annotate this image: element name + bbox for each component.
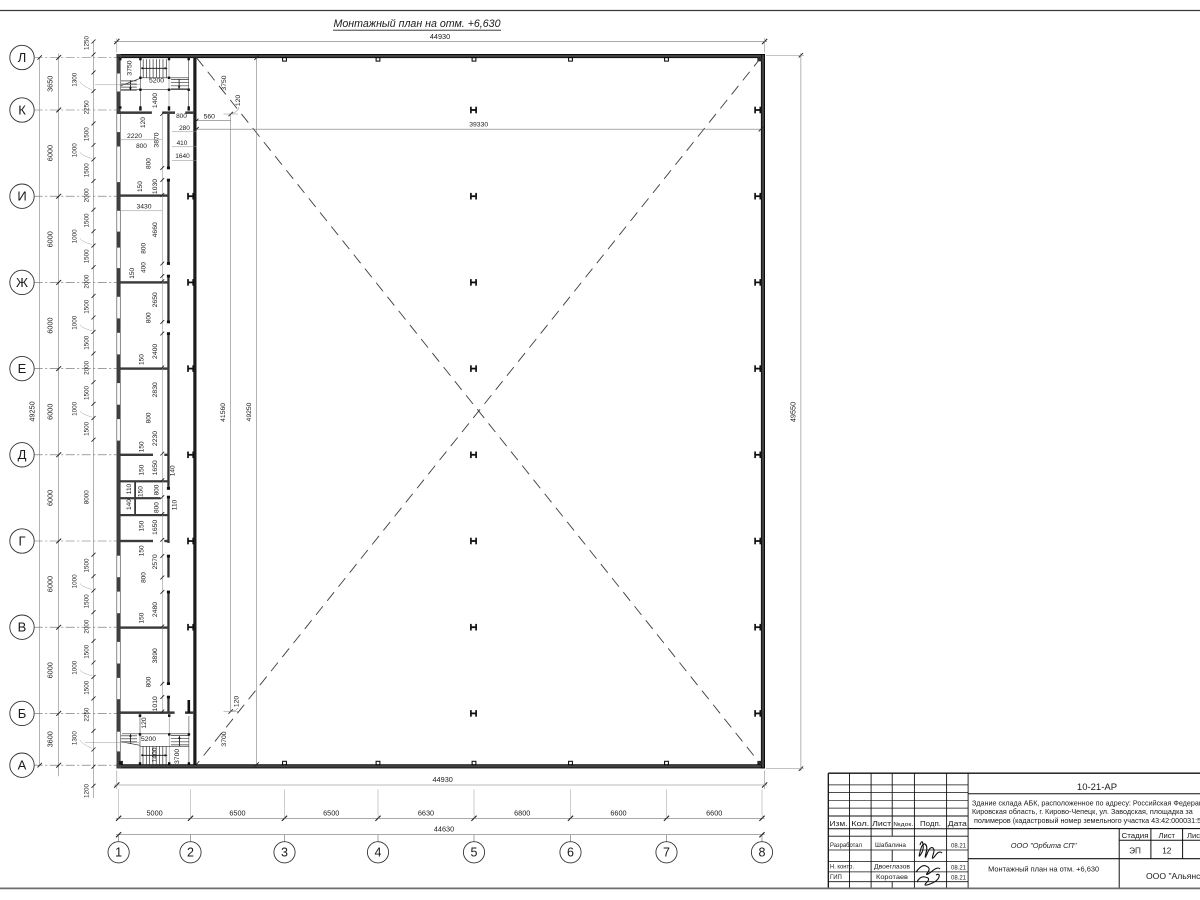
- svg-text:Листов: Листов: [1187, 831, 1200, 840]
- svg-text:12: 12: [1162, 847, 1172, 856]
- svg-text:140: 140: [126, 499, 133, 510]
- svg-text:2570: 2570: [152, 554, 159, 569]
- svg-text:Г: Г: [18, 533, 25, 548]
- svg-text:5000: 5000: [146, 808, 162, 817]
- svg-text:6000: 6000: [46, 576, 55, 592]
- svg-text:6500: 6500: [229, 808, 245, 817]
- svg-text:800: 800: [146, 312, 153, 323]
- svg-text:2400: 2400: [152, 344, 159, 359]
- svg-text:800: 800: [154, 484, 161, 495]
- svg-text:110: 110: [126, 483, 133, 494]
- svg-text:3890: 3890: [152, 648, 159, 663]
- svg-text:6000: 6000: [46, 145, 55, 161]
- svg-text:К: К: [18, 102, 26, 117]
- svg-text:3750: 3750: [221, 75, 228, 90]
- svg-text:полимеров (кадастровый номер з: полимеров (кадастровый номер земельного …: [974, 816, 1200, 825]
- svg-text:1300: 1300: [71, 72, 78, 87]
- svg-text:Ж: Ж: [16, 275, 28, 290]
- svg-text:Подп.: Подп.: [920, 819, 941, 828]
- svg-text:ООО "Орбита СП": ООО "Орбита СП": [1011, 841, 1077, 850]
- svg-text:3700: 3700: [174, 749, 181, 764]
- svg-text:150: 150: [139, 612, 146, 623]
- svg-text:120: 120: [140, 117, 147, 128]
- svg-text:7: 7: [663, 846, 670, 860]
- svg-text:1000: 1000: [71, 401, 78, 416]
- svg-text:Здание склада АБК, расположенн: Здание склада АБК, расположенное по адре…: [972, 798, 1200, 807]
- svg-text:800: 800: [146, 412, 153, 423]
- svg-text:1650: 1650: [152, 520, 159, 535]
- svg-text:44930: 44930: [433, 775, 453, 784]
- svg-text:150: 150: [139, 354, 146, 365]
- svg-text:8000: 8000: [84, 490, 91, 505]
- svg-text:44630: 44630: [434, 825, 454, 834]
- svg-text:1500: 1500: [84, 249, 91, 264]
- svg-text:2000: 2000: [84, 360, 91, 375]
- svg-text:1000: 1000: [71, 660, 78, 675]
- svg-text:6600: 6600: [610, 808, 626, 817]
- svg-text:1500: 1500: [84, 335, 91, 350]
- svg-text:№док.: №док.: [893, 822, 913, 828]
- svg-text:410: 410: [177, 140, 188, 147]
- svg-text:49250: 49250: [28, 401, 37, 421]
- svg-text:41560: 41560: [220, 403, 227, 422]
- svg-text:Д: Д: [18, 447, 27, 462]
- svg-text:Шабалина: Шабалина: [875, 841, 906, 849]
- svg-text:Б: Б: [18, 706, 27, 721]
- svg-text:1500: 1500: [84, 163, 91, 178]
- svg-text:800: 800: [136, 143, 147, 150]
- svg-text:120: 120: [141, 717, 148, 729]
- svg-text:Кол.: Кол.: [851, 819, 869, 828]
- svg-text:800: 800: [140, 242, 147, 253]
- svg-text:1030: 1030: [152, 179, 159, 194]
- svg-text:150: 150: [139, 464, 146, 475]
- svg-text:120: 120: [235, 95, 242, 107]
- svg-text:2230: 2230: [152, 431, 159, 446]
- svg-text:2220: 2220: [127, 133, 142, 140]
- svg-text:560: 560: [204, 113, 216, 120]
- svg-text:А: А: [18, 758, 27, 773]
- svg-text:150: 150: [138, 486, 145, 497]
- svg-text:1000: 1000: [71, 229, 78, 244]
- svg-text:Дата: Дата: [948, 819, 968, 828]
- svg-text:08.21: 08.21: [951, 876, 967, 882]
- svg-text:1500: 1500: [84, 127, 91, 142]
- svg-text:1200: 1200: [84, 784, 91, 799]
- svg-text:6000: 6000: [46, 662, 55, 678]
- svg-text:800: 800: [140, 572, 147, 583]
- svg-text:6000: 6000: [46, 231, 55, 247]
- svg-text:Двоеглазов: Двоеглазов: [874, 864, 911, 871]
- svg-text:140: 140: [170, 465, 177, 476]
- svg-text:Разработал: Разработал: [830, 843, 862, 849]
- svg-text:1000: 1000: [71, 143, 78, 158]
- svg-text:1500: 1500: [84, 213, 91, 228]
- svg-text:Н. контр.: Н. контр.: [830, 865, 854, 871]
- svg-text:1400: 1400: [152, 93, 159, 108]
- svg-text:800: 800: [146, 676, 153, 687]
- svg-text:150: 150: [139, 520, 146, 531]
- svg-text:Стадия: Стадия: [1122, 831, 1149, 840]
- svg-text:1500: 1500: [84, 421, 91, 436]
- svg-text:1250: 1250: [84, 36, 91, 51]
- svg-text:1010: 1010: [152, 696, 159, 711]
- svg-text:2000: 2000: [84, 274, 91, 289]
- svg-text:49250: 49250: [246, 402, 253, 421]
- svg-text:2000: 2000: [84, 188, 91, 203]
- svg-text:В: В: [18, 620, 27, 635]
- svg-text:6600: 6600: [706, 808, 722, 817]
- svg-text:2650: 2650: [152, 292, 159, 307]
- svg-text:6500: 6500: [323, 808, 339, 817]
- svg-text:150: 150: [129, 267, 136, 278]
- svg-text:1500: 1500: [84, 299, 91, 314]
- svg-text:1500: 1500: [84, 594, 91, 609]
- svg-text:ЭП: ЭП: [1129, 847, 1141, 856]
- svg-text:5200: 5200: [149, 78, 164, 85]
- svg-text:39330: 39330: [469, 122, 488, 129]
- svg-text:1500: 1500: [84, 644, 91, 659]
- svg-text:6: 6: [567, 846, 574, 860]
- svg-text:120: 120: [233, 696, 240, 708]
- svg-text:2480: 2480: [152, 602, 159, 617]
- svg-text:1500: 1500: [84, 680, 91, 695]
- svg-text:150: 150: [137, 181, 144, 192]
- svg-text:6000: 6000: [46, 490, 55, 506]
- svg-text:44930: 44930: [430, 32, 450, 41]
- svg-text:1000: 1000: [71, 315, 78, 330]
- svg-text:2000: 2000: [84, 619, 91, 634]
- svg-text:2250: 2250: [84, 100, 91, 115]
- svg-text:4: 4: [375, 846, 382, 860]
- svg-text:6000: 6000: [46, 404, 55, 420]
- svg-text:Изм.: Изм.: [830, 819, 848, 828]
- svg-text:6800: 6800: [514, 808, 530, 817]
- svg-text:Коротаев: Коротаев: [876, 874, 909, 881]
- svg-text:Монтажный план на отм. +6,630: Монтажный план на отм. +6,630: [334, 18, 502, 30]
- svg-text:6630: 6630: [418, 808, 434, 817]
- svg-text:8: 8: [759, 846, 766, 860]
- svg-text:08.21: 08.21: [951, 844, 967, 850]
- svg-text:110: 110: [172, 499, 179, 510]
- svg-text:1640: 1640: [175, 153, 190, 160]
- svg-text:6000: 6000: [46, 317, 55, 333]
- svg-text:3430: 3430: [136, 204, 151, 211]
- svg-text:Лист: Лист: [1159, 831, 1176, 840]
- svg-text:3700: 3700: [221, 731, 228, 746]
- svg-text:2830: 2830: [152, 382, 159, 397]
- svg-text:800: 800: [154, 502, 161, 513]
- svg-text:ООО "Альянспроект": ООО "Альянспроект": [1146, 871, 1200, 881]
- svg-text:150: 150: [139, 441, 146, 452]
- svg-text:ГИП: ГИП: [830, 875, 842, 881]
- svg-text:1000: 1000: [71, 574, 78, 589]
- svg-text:1650: 1650: [152, 460, 159, 475]
- svg-text:800: 800: [146, 158, 153, 169]
- svg-text:150: 150: [139, 545, 146, 556]
- svg-text:4660: 4660: [152, 222, 159, 237]
- svg-text:1400: 1400: [151, 747, 158, 762]
- svg-text:08.21: 08.21: [951, 865, 967, 871]
- svg-text:3750: 3750: [127, 60, 134, 75]
- svg-text:3600: 3600: [46, 731, 55, 747]
- svg-text:5: 5: [471, 846, 478, 860]
- svg-text:1300: 1300: [71, 731, 78, 746]
- svg-text:1500: 1500: [84, 558, 91, 573]
- svg-text:2250: 2250: [84, 707, 91, 722]
- svg-text:400: 400: [140, 262, 147, 273]
- svg-text:Лист: Лист: [872, 819, 892, 828]
- svg-text:49550: 49550: [788, 402, 797, 422]
- svg-text:10-21-АР: 10-21-АР: [1077, 782, 1117, 793]
- svg-text:И: И: [17, 189, 26, 204]
- svg-text:Е: Е: [18, 361, 27, 376]
- svg-text:Л: Л: [18, 50, 27, 65]
- svg-text:280: 280: [179, 125, 190, 132]
- svg-text:Кировская область, г. Кирово-Ч: Кировская область, г. Кирово-Чепецк, ул.…: [972, 807, 1193, 816]
- svg-text:1500: 1500: [84, 386, 91, 401]
- svg-text:1: 1: [115, 846, 122, 860]
- svg-text:3650: 3650: [46, 76, 55, 92]
- svg-text:2: 2: [187, 846, 194, 860]
- svg-text:5200: 5200: [141, 736, 156, 743]
- svg-text:Монтажный план на отм. +6,630: Монтажный план на отм. +6,630: [988, 865, 1099, 874]
- svg-text:800: 800: [176, 113, 187, 120]
- svg-text:3: 3: [281, 846, 288, 860]
